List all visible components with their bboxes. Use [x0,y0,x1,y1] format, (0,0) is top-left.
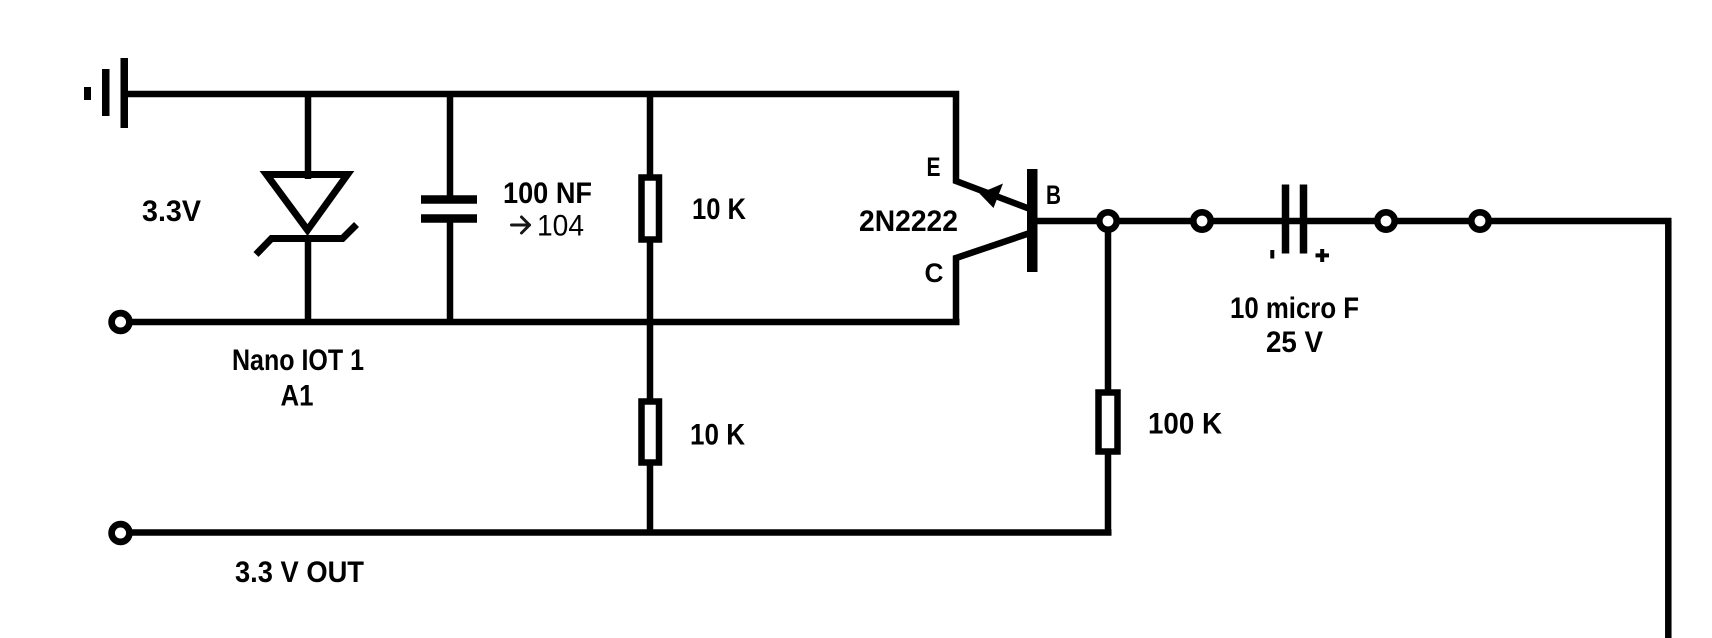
svg-text:10 K: 10 K [692,193,746,226]
svg-text:10 micro F: 10 micro F [1230,292,1359,325]
svg-text:10 K: 10 K [690,419,745,452]
svg-text:2N2222: 2N2222 [859,205,958,238]
svg-text:3.3V: 3.3V [142,195,201,228]
svg-text:25 V: 25 V [1266,326,1323,359]
svg-text:A1: A1 [281,380,314,413]
svg-text:100 NF: 100 NF [503,177,592,210]
svg-text:B: B [1046,180,1061,210]
svg-text:3.3 V OUT: 3.3 V OUT [235,556,364,589]
svg-text:104: 104 [537,210,584,243]
svg-text:Nano IOT 1: Nano IOT 1 [232,344,364,377]
svg-text:C: C [925,258,944,288]
svg-text:E: E [927,152,941,182]
svg-text:100 K: 100 K [1148,408,1222,441]
